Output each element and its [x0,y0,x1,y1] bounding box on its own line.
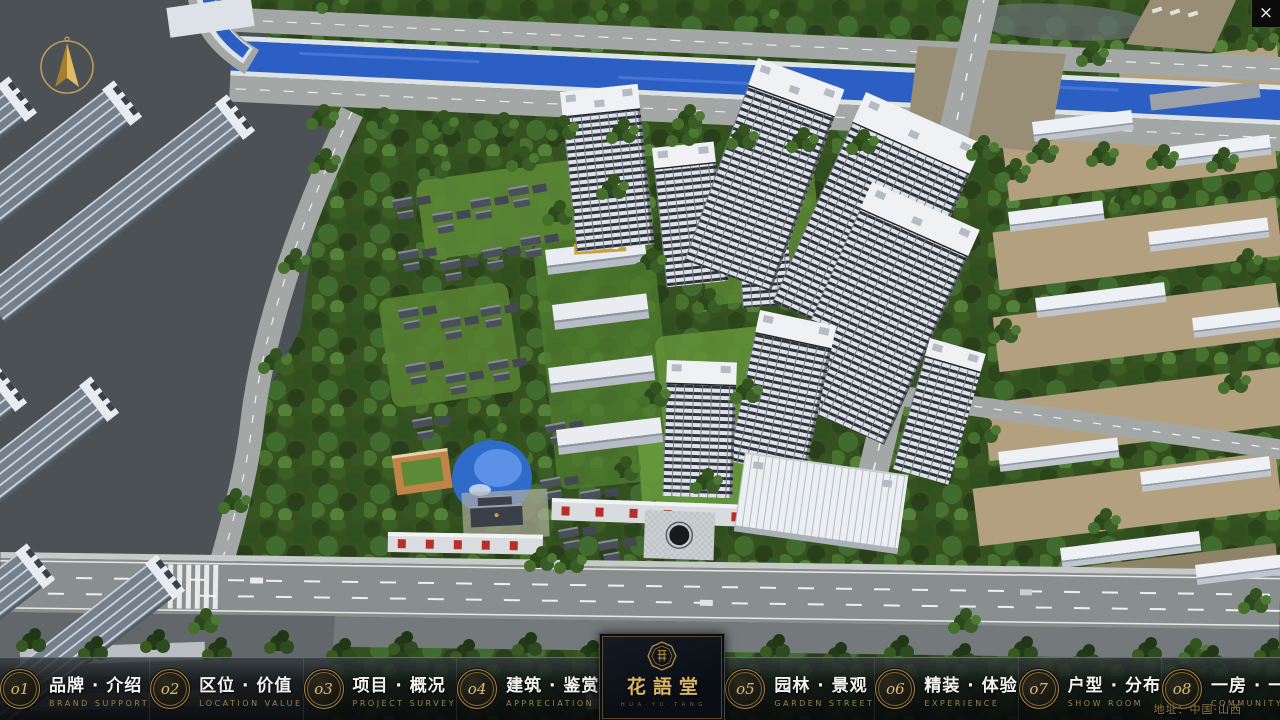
nav-item-brand[interactable]: o1 品牌 · 介绍 BRAND SUPPORT [0,658,149,720]
nav-item-sublabel: SHOW ROOM [1068,699,1143,708]
nav-item-location[interactable]: o2 区位 · 价值 LOCATION VALUE [149,658,302,720]
nav-item-project[interactable]: o3 项目 · 概况 PROJECT SURVEY [303,658,457,720]
nav-item-label: 一房 · 一景 [1211,671,1280,696]
project-address: 地址：中国·山西 [1154,701,1243,717]
bottom-navbar: o1 品牌 · 介绍 BRAND SUPPORT o2 区位 · 价值 LOCA… [0,657,1280,720]
entrance-plaza [643,510,715,560]
nav-item-floorplan[interactable]: o7 户型 · 分布 SHOW ROOM [1018,658,1161,720]
brand-title: 花語堂 [620,672,705,699]
nav-item-garden[interactable]: o5 园林 · 景观 GARDEN STREET [725,658,874,720]
brand-logo-panel[interactable]: 花語堂 H U A · Y U · T A N G [599,633,725,720]
nav-item-label: 精装 · 体验 [924,671,1017,696]
nav-item-number: o3 [304,669,344,709]
nav-group-left: o1 品牌 · 介绍 BRAND SUPPORT o2 区位 · 价值 LOCA… [0,658,599,720]
car [700,600,713,606]
nav-item-label: 园林 · 景观 [774,671,867,696]
masterplan-3d-viewport[interactable] [0,0,1280,720]
nav-item-number: o7 [1019,669,1059,709]
nav-item-interior[interactable]: o6 精装 · 体验 EXPERIENCE [874,658,1017,720]
sales-presentation-window: × o1 品牌 · 介绍 BRAND SUPPORT o2 区位 · 价值 LO… [0,0,1280,720]
nav-item-number: o1 [0,669,40,709]
close-icon: × [1259,5,1273,22]
nav-item-label: 户型 · 分布 [1068,671,1161,696]
nav-item-number: o6 [875,669,915,709]
nav-item-number: o4 [457,669,497,709]
close-button[interactable]: × [1251,0,1280,28]
nav-item-sublabel: GARDEN STREET [774,699,874,708]
nav-item-architecture[interactable]: o4 建筑 · 鉴赏 APPRECIATION [456,658,599,720]
car [1020,589,1032,595]
nav-item-sublabel: EXPERIENCE [924,699,999,708]
nav-item-sublabel: PROJECT SURVEY [353,699,457,708]
nav-item-label: 区位 · 价值 [199,671,292,696]
nav-item-label: 项目 · 概况 [353,671,446,696]
nav-item-number: o5 [725,669,765,709]
nav-item-sublabel: APPRECIATION [506,699,594,708]
brand-subtitle: H U A · Y U · T A N G [621,701,704,707]
nav-item-label: 品牌 · 介绍 [49,671,142,696]
traditional-hall [461,488,549,540]
car [250,577,263,583]
orange-courtyard-building [392,448,453,495]
storefront-strip-west [388,532,543,555]
nav-item-sublabel: BRAND SUPPORT [49,699,149,708]
nav-item-label: 建筑 · 鉴赏 [506,671,599,696]
nav-item-sublabel: LOCATION VALUE [199,699,302,708]
nav-item-number: o2 [150,669,190,709]
brand-seal-icon [647,641,677,671]
